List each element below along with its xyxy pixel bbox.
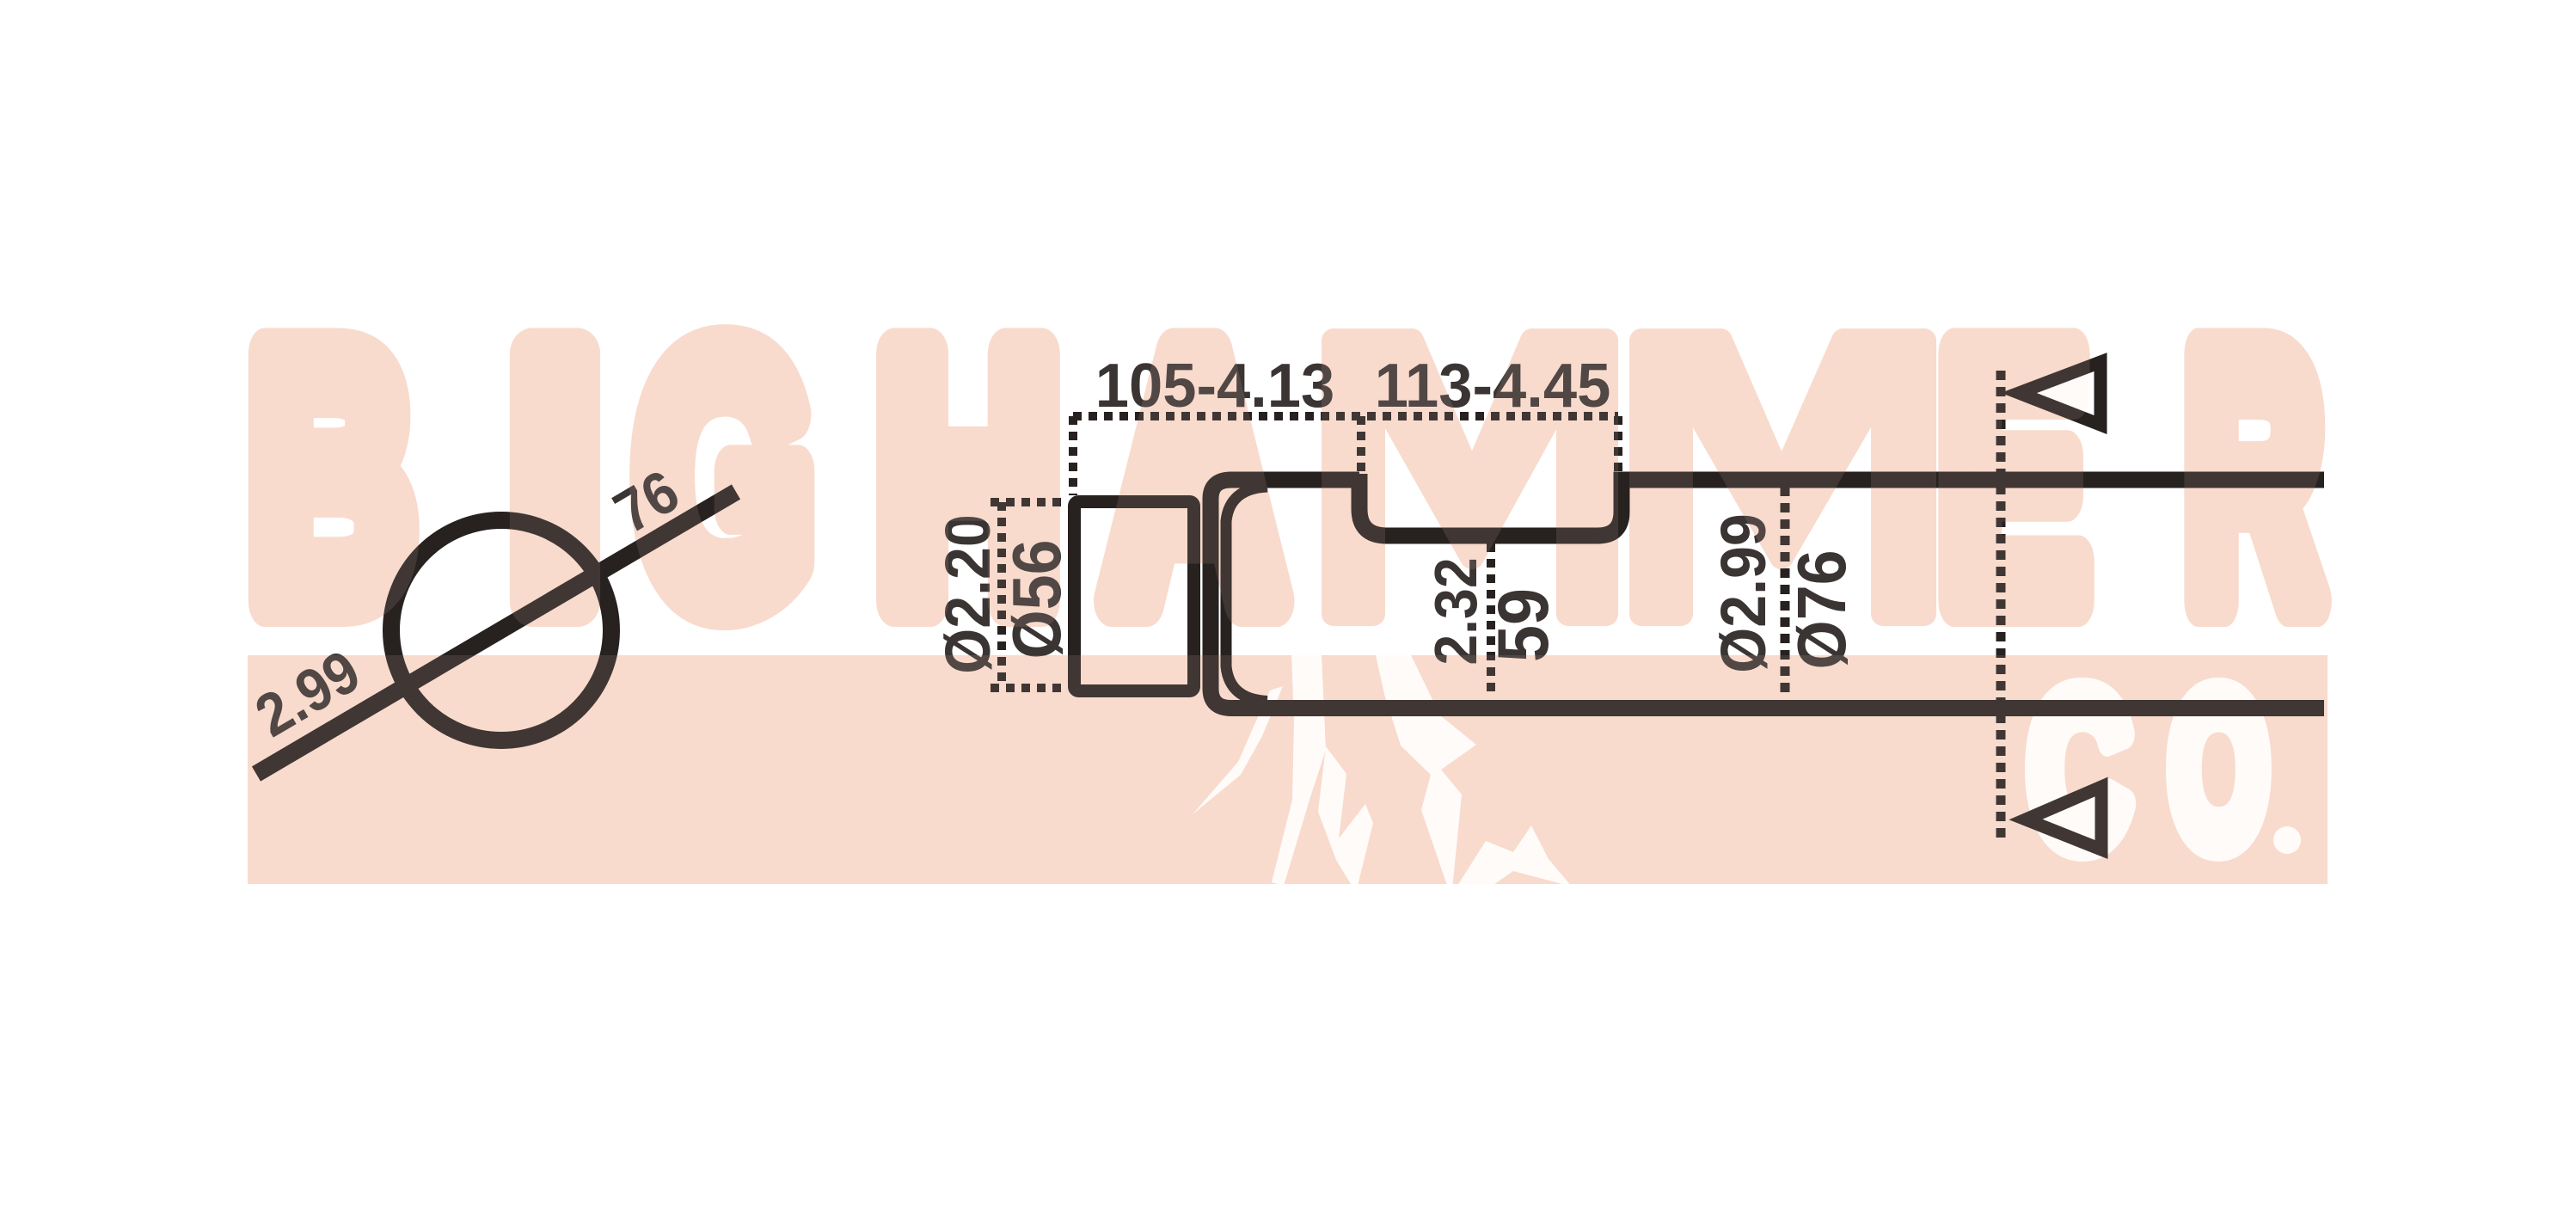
svg-text:2.32: 2.32	[1423, 557, 1490, 665]
svg-text:Ø76: Ø76	[1783, 549, 1861, 669]
svg-text:59: 59	[1483, 588, 1564, 662]
